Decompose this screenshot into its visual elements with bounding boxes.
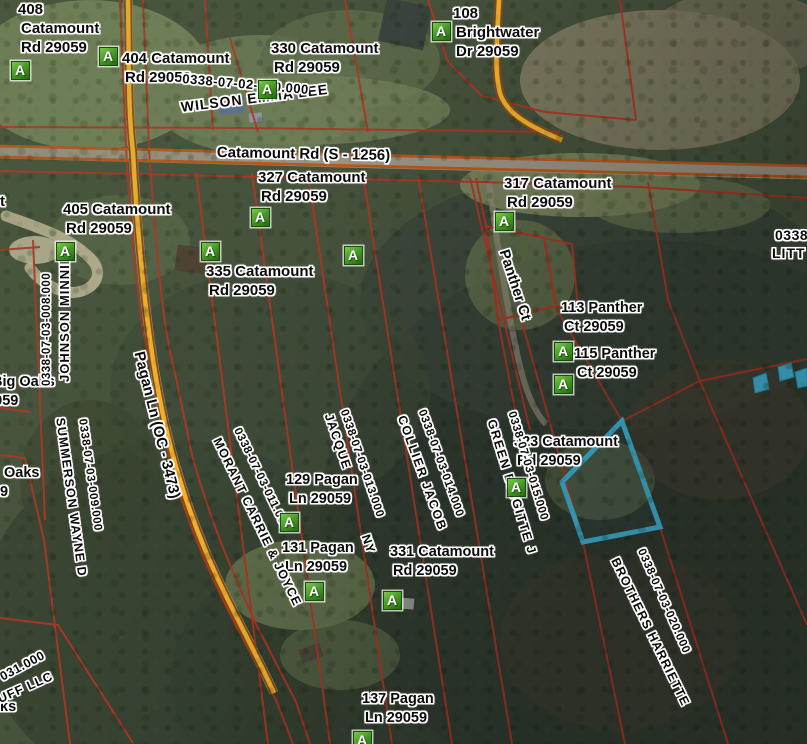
address-label-137-pagan: 137 Pagan xyxy=(362,692,434,707)
address-label-t-partial: t xyxy=(0,194,5,210)
owner-label-parcel-0338-right-partial: 0338 xyxy=(775,228,807,243)
road-label-catamount-rd: Catamount Rd (S - 1256) xyxy=(217,145,391,164)
address-label-405-catamount: Rd 29059 xyxy=(66,221,132,237)
address-label-115-panther: 115 Panther xyxy=(574,347,655,362)
address-point-marker[interactable]: A xyxy=(344,246,363,265)
address-point-marker[interactable]: A xyxy=(495,212,514,231)
address-label-113-panther: 113 Panther xyxy=(561,301,642,316)
address-label-129-pagan: 129 Pagan xyxy=(286,473,358,488)
address-label-108-brightwater: Dr 29059 xyxy=(456,44,519,60)
address-label-323-catamount: 323 Catamount xyxy=(514,435,618,450)
address-label-115-panther: Ct 29059 xyxy=(577,366,637,381)
address-point-marker[interactable]: A xyxy=(201,242,220,261)
address-label-317-catamount: 317 Catamount xyxy=(504,176,612,192)
address-label-108-brightwater: Brightwater xyxy=(456,25,539,41)
address-label-oaks-partial: 9 xyxy=(0,485,8,500)
address-label-335-catamount: 335 Catamount xyxy=(206,264,314,280)
address-label-129-pagan: Ln 29059 xyxy=(289,492,351,507)
address-label-405-catamount: 405 Catamount xyxy=(63,202,171,218)
address-label-331-catamount: 331 Catamount xyxy=(390,545,494,560)
address-label-330-catamount: Rd 29059 xyxy=(274,60,340,76)
address-label-317-catamount: Rd 29059 xyxy=(507,195,573,211)
address-label-113-panther: Ct 29059 xyxy=(564,320,624,335)
address-label-131-pagan: 131 Pagan xyxy=(282,541,354,556)
address-point-marker[interactable]: A xyxy=(56,242,75,261)
address-label-408-catamount: Rd 29059 xyxy=(21,40,87,56)
address-label-331-catamount: Rd 29059 xyxy=(393,564,457,579)
address-label-408-catamount: Catamount xyxy=(21,21,99,37)
address-point-marker[interactable]: A xyxy=(353,731,372,744)
address-label-404-catamount: 404 Catamount xyxy=(122,51,230,67)
owner-label-johnson-minnie: JOHNSON MINNIE xyxy=(58,255,72,382)
address-point-marker[interactable]: A xyxy=(11,61,30,80)
owner-label-parcel-008: 0338-07-03-008.000 xyxy=(41,273,53,386)
address-label-oaks-partial: Oaks xyxy=(4,466,39,481)
address-label-330-catamount: 330 Catamount xyxy=(271,41,379,57)
map-canvas[interactable]: 408CatamountRd 29059404 CatamountRd 2905… xyxy=(0,0,807,744)
address-point-marker[interactable]: A xyxy=(280,513,299,532)
address-label-108-brightwater: 108 xyxy=(453,6,478,22)
address-point-marker[interactable]: A xyxy=(305,582,324,601)
address-label-137-pagan: Ln 29059 xyxy=(365,711,427,726)
address-label-408-catamount: 408 xyxy=(18,2,43,18)
address-label-327-catamount: Rd 29059 xyxy=(261,189,327,205)
address-point-marker[interactable]: A xyxy=(554,342,573,361)
address-point-marker[interactable]: A xyxy=(432,22,451,41)
address-label-131-pagan: Ln 29059 xyxy=(285,560,347,575)
address-point-marker[interactable]: A xyxy=(554,375,573,394)
address-label-327-catamount: 327 Catamount xyxy=(258,170,366,186)
address-point-marker[interactable]: A xyxy=(258,80,277,99)
address-label-335-catamount: Rd 29059 xyxy=(209,283,275,299)
owner-label-litt-right-partial: LITT xyxy=(772,246,806,261)
aerial-imagery-layer xyxy=(0,0,807,744)
address-point-marker[interactable]: A xyxy=(507,478,526,497)
address-point-marker[interactable]: A xyxy=(383,591,402,610)
address-point-marker[interactable]: A xyxy=(99,47,118,66)
address-label-big-oaks-partial: 29059 xyxy=(0,394,18,409)
address-point-marker[interactable]: A xyxy=(251,208,270,227)
